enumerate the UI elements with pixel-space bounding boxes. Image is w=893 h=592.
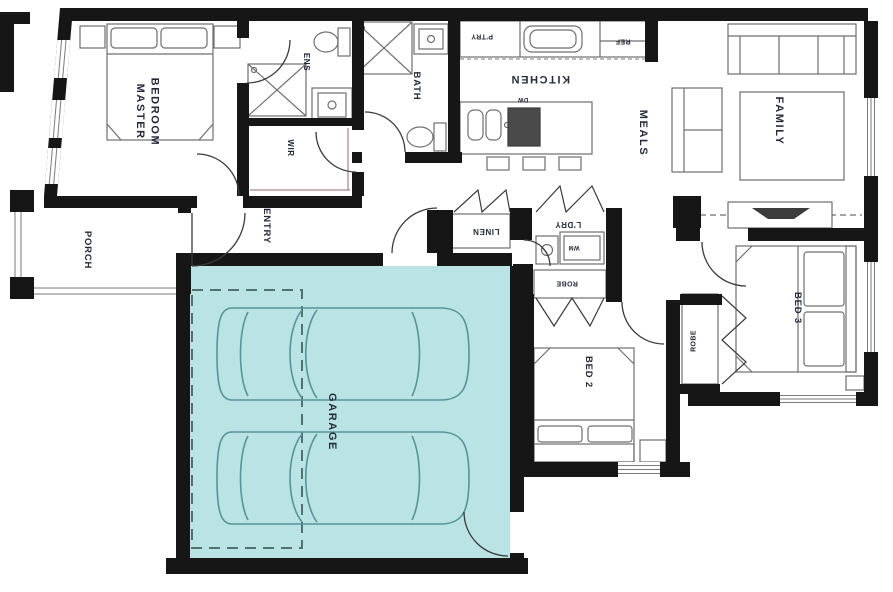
bath-door-swing [365, 112, 405, 152]
room-label-bath: BATH [410, 72, 422, 101]
room-label-bed2: BED 2 [582, 356, 594, 388]
stool [487, 157, 509, 170]
shower-icon [356, 22, 412, 74]
sofa [728, 24, 856, 74]
laundry-trough [536, 236, 558, 264]
room-label-wir: WIR [285, 139, 295, 156]
laundry-note-label: WM [568, 242, 579, 250]
room-label-ens: ENS [301, 53, 311, 71]
tv-unit [728, 202, 832, 228]
room-label-linen: LINEN [473, 226, 500, 236]
wir-door-swing [316, 132, 356, 172]
basin-icon [414, 24, 448, 54]
linen-bifold-doors [454, 190, 510, 212]
window-master-left-1 [54, 40, 70, 78]
room-label-fridge: REF [615, 36, 630, 45]
room-label-dishwasher: DW [518, 94, 529, 102]
robe-bed2-bifold-doors [536, 298, 604, 326]
bedside-table [214, 26, 240, 48]
room-label-robe-bed2: ROBE [556, 278, 578, 287]
room-label-kitchen: KITCHEN [510, 72, 570, 86]
toilet-icon [407, 123, 446, 151]
dishwasher-icon [508, 108, 540, 146]
window-master-left-2 [49, 100, 65, 138]
laundry-bifold-doors [536, 186, 604, 212]
room-label-meals: MEALS [636, 110, 650, 157]
bedside-table [80, 26, 105, 48]
robe-bed3-cupboard [682, 294, 718, 384]
room-label-porch: PORCH [81, 231, 93, 269]
room-label-garage: GARAGE [325, 393, 339, 451]
bathroom-fixtures [356, 22, 448, 151]
window-bed3-bottom [780, 392, 856, 406]
shower-icon [248, 64, 306, 116]
armchair [672, 88, 722, 172]
rug [740, 92, 844, 180]
room-label-family: FAMILY [772, 97, 786, 146]
basin-icon [312, 88, 352, 122]
toilet-icon [314, 28, 350, 56]
stool [559, 157, 581, 170]
window-master-left-3 [45, 148, 61, 184]
wir-shelf-lines [250, 128, 350, 190]
washing-machine [560, 232, 604, 264]
ensuite-fixtures [248, 28, 352, 122]
bed2-door-swing [622, 302, 664, 344]
window-bed3-right [864, 262, 878, 352]
laundry-door-swing [524, 240, 550, 266]
bedside-table [846, 376, 864, 390]
room-label-entry: ENTRY [260, 208, 272, 244]
room-label-bed3: BED 3 [791, 292, 803, 324]
bedside-table [640, 440, 666, 462]
floor-plan: MASTER BEDROOM ENS WIR BATH KITCHEN P'TR… [0, 0, 893, 592]
stool [523, 157, 545, 170]
room-label-master-bedroom: MASTER BEDROOM [133, 78, 162, 147]
room-label-laundry: L'DRY [555, 219, 581, 229]
cooktop-inner [530, 30, 576, 48]
window-family-right [864, 98, 878, 176]
bed2-furniture [534, 348, 666, 462]
window-bed2-bottom [618, 462, 660, 477]
room-label-pantry: P'TRY [471, 31, 493, 40]
room-label-robe-bed3: ROBE [689, 330, 698, 352]
ensuite-door-swing [247, 40, 290, 83]
master-door-swing [197, 154, 239, 196]
